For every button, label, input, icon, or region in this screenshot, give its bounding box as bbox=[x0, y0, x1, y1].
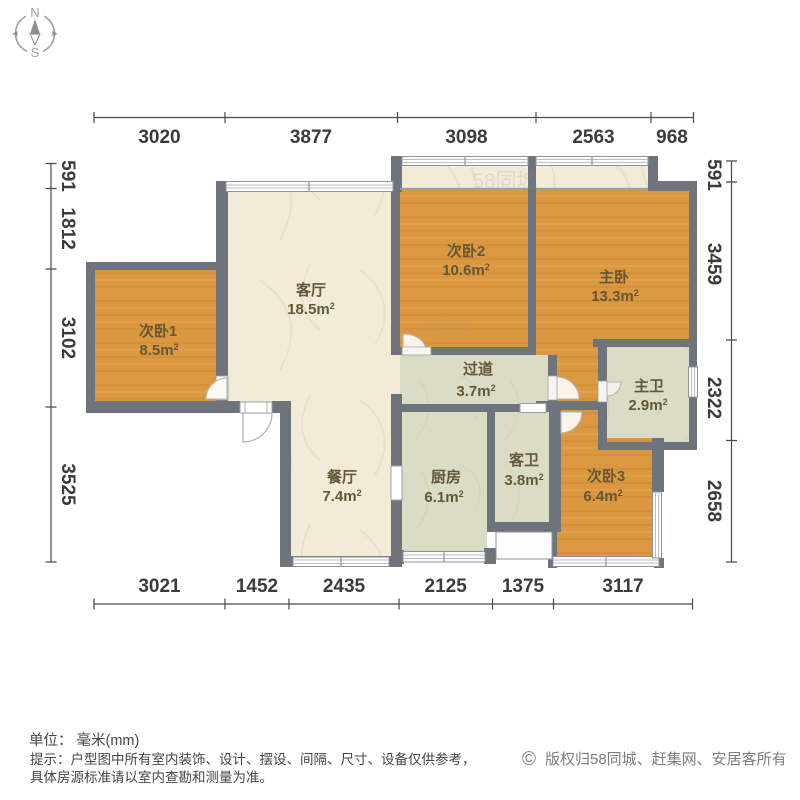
svg-text:主卧: 主卧 bbox=[599, 268, 629, 286]
svg-text:6.1m2: 6.1m2 bbox=[424, 489, 463, 506]
svg-text:3021: 3021 bbox=[138, 576, 181, 597]
svg-text:次卧2: 次卧2 bbox=[447, 242, 485, 260]
svg-text:客卫: 客卫 bbox=[508, 451, 539, 469]
svg-text:3459: 3459 bbox=[703, 243, 724, 285]
svg-text:主卫: 主卫 bbox=[634, 377, 664, 395]
svg-text:过道: 过道 bbox=[463, 360, 493, 378]
svg-text:3525: 3525 bbox=[57, 463, 78, 506]
svg-text:版权归58同城、赶集网、安居客所有: 版权归58同城、赶集网、安居客所有 bbox=[545, 751, 787, 768]
svg-text:6.4m2: 6.4m2 bbox=[583, 488, 622, 505]
svg-text:3.7m2: 3.7m2 bbox=[456, 383, 495, 400]
svg-text:1812: 1812 bbox=[57, 208, 78, 250]
svg-text:8.5m2: 8.5m2 bbox=[139, 342, 178, 359]
svg-text:58同城: 58同城 bbox=[420, 318, 470, 336]
svg-text:591: 591 bbox=[703, 159, 724, 191]
svg-text:13.3m2: 13.3m2 bbox=[591, 288, 639, 305]
svg-text:次卧1: 次卧1 bbox=[139, 322, 177, 340]
svg-text:2.9m2: 2.9m2 bbox=[628, 397, 667, 414]
svg-text:10.6m2: 10.6m2 bbox=[442, 262, 490, 279]
svg-text:968: 968 bbox=[656, 127, 688, 148]
svg-text:2658: 2658 bbox=[703, 480, 724, 522]
svg-text:591: 591 bbox=[57, 160, 78, 192]
svg-text:3098: 3098 bbox=[445, 127, 487, 148]
svg-text:18.5m2: 18.5m2 bbox=[287, 301, 335, 318]
svg-text:次卧3: 次卧3 bbox=[587, 467, 625, 485]
svg-text:3.8m2: 3.8m2 bbox=[504, 472, 543, 489]
svg-text:1452: 1452 bbox=[236, 576, 278, 597]
svg-text:餐厅: 餐厅 bbox=[327, 468, 357, 486]
svg-text:58同城: 58同城 bbox=[472, 170, 537, 193]
svg-text:2322: 2322 bbox=[703, 377, 724, 419]
svg-text:单位： 毫米(mm): 单位： 毫米(mm) bbox=[29, 731, 139, 749]
svg-text:3020: 3020 bbox=[138, 127, 180, 148]
svg-text:2435: 2435 bbox=[323, 576, 366, 597]
svg-text:3117: 3117 bbox=[602, 576, 643, 597]
svg-text:具体房源标准请以室内查勘和测量为准。: 具体房源标准请以室内查勘和测量为准。 bbox=[30, 769, 273, 785]
svg-text:厨房: 厨房 bbox=[431, 468, 461, 486]
svg-text:2563: 2563 bbox=[572, 127, 614, 148]
svg-text:客厅: 客厅 bbox=[295, 281, 326, 299]
svg-text:3877: 3877 bbox=[290, 127, 332, 148]
svg-text:©: © bbox=[522, 749, 536, 770]
svg-text:2125: 2125 bbox=[425, 576, 468, 597]
svg-text:提示：户型图中所有室内装饰、设计、摆设、间隔、尺寸、设备仅供: 提示：户型图中所有室内装饰、设计、摆设、间隔、尺寸、设备仅供参考， bbox=[30, 751, 476, 767]
svg-text:3102: 3102 bbox=[57, 317, 78, 359]
svg-text:7.4m2: 7.4m2 bbox=[322, 488, 361, 505]
svg-text:S: S bbox=[31, 45, 40, 60]
svg-text:1375: 1375 bbox=[502, 576, 545, 597]
svg-text:N: N bbox=[30, 5, 39, 20]
